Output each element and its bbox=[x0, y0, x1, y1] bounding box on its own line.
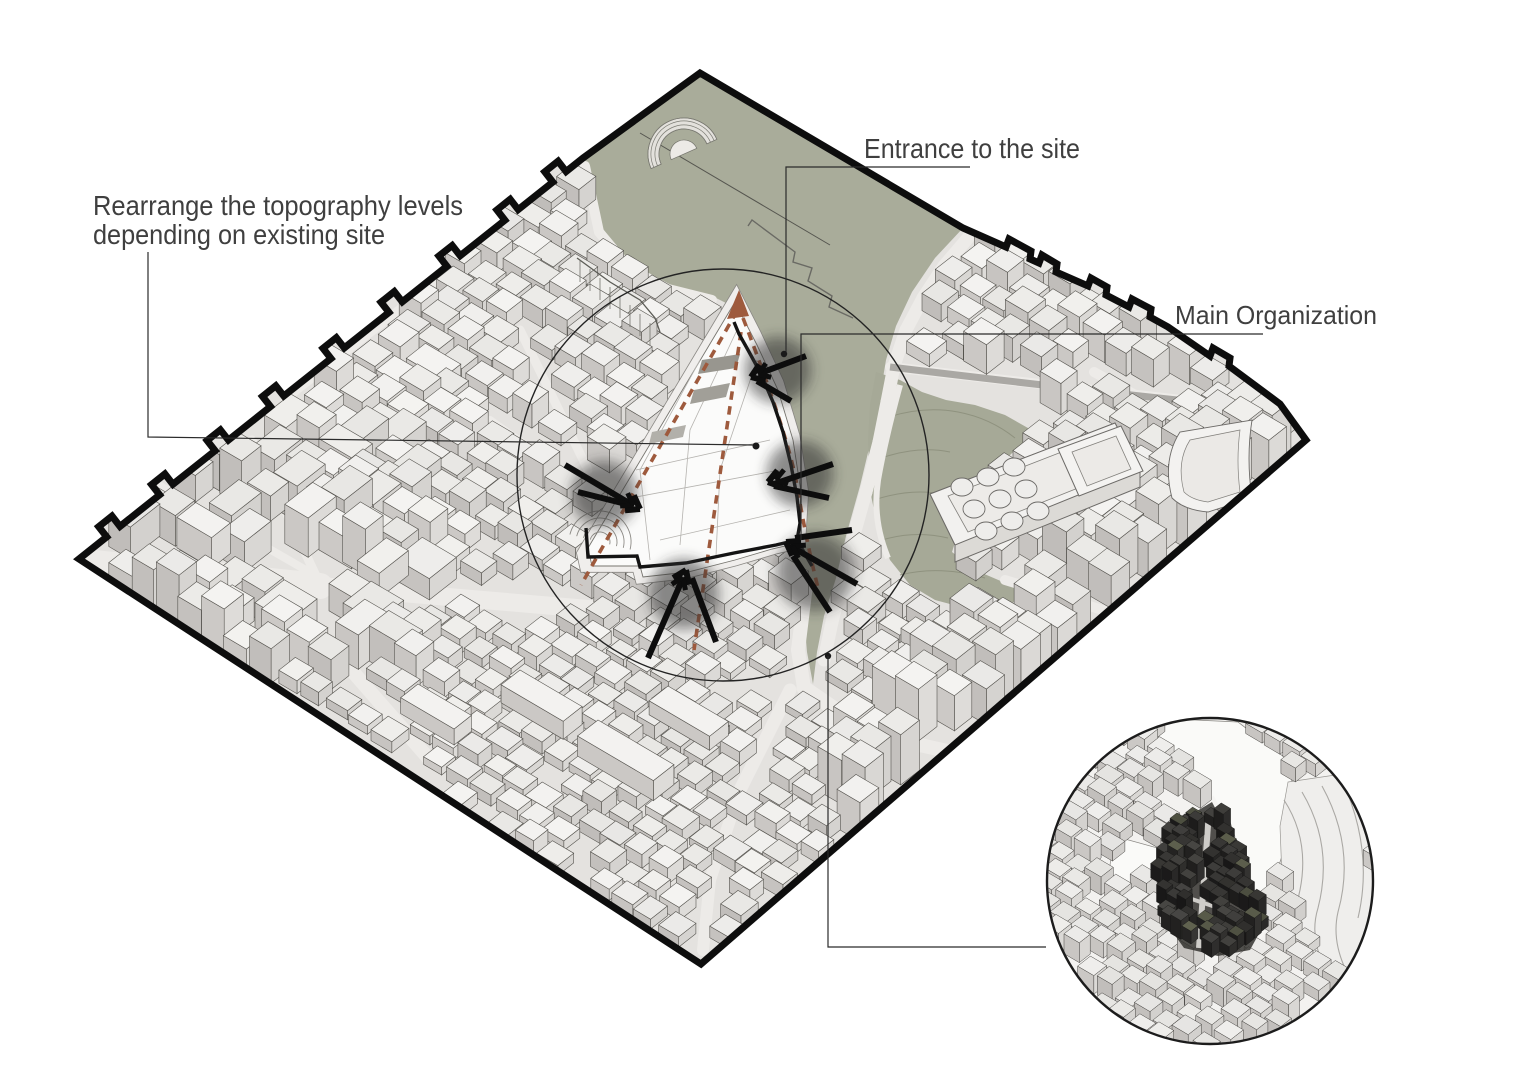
svg-text:Main Organization: Main Organization bbox=[1175, 300, 1377, 330]
svg-text:Entrance to the site: Entrance to the site bbox=[864, 133, 1080, 164]
svg-text:depending on existing site: depending on existing site bbox=[93, 219, 385, 250]
svg-text:Rearrange the topography level: Rearrange the topography levels bbox=[93, 190, 463, 221]
